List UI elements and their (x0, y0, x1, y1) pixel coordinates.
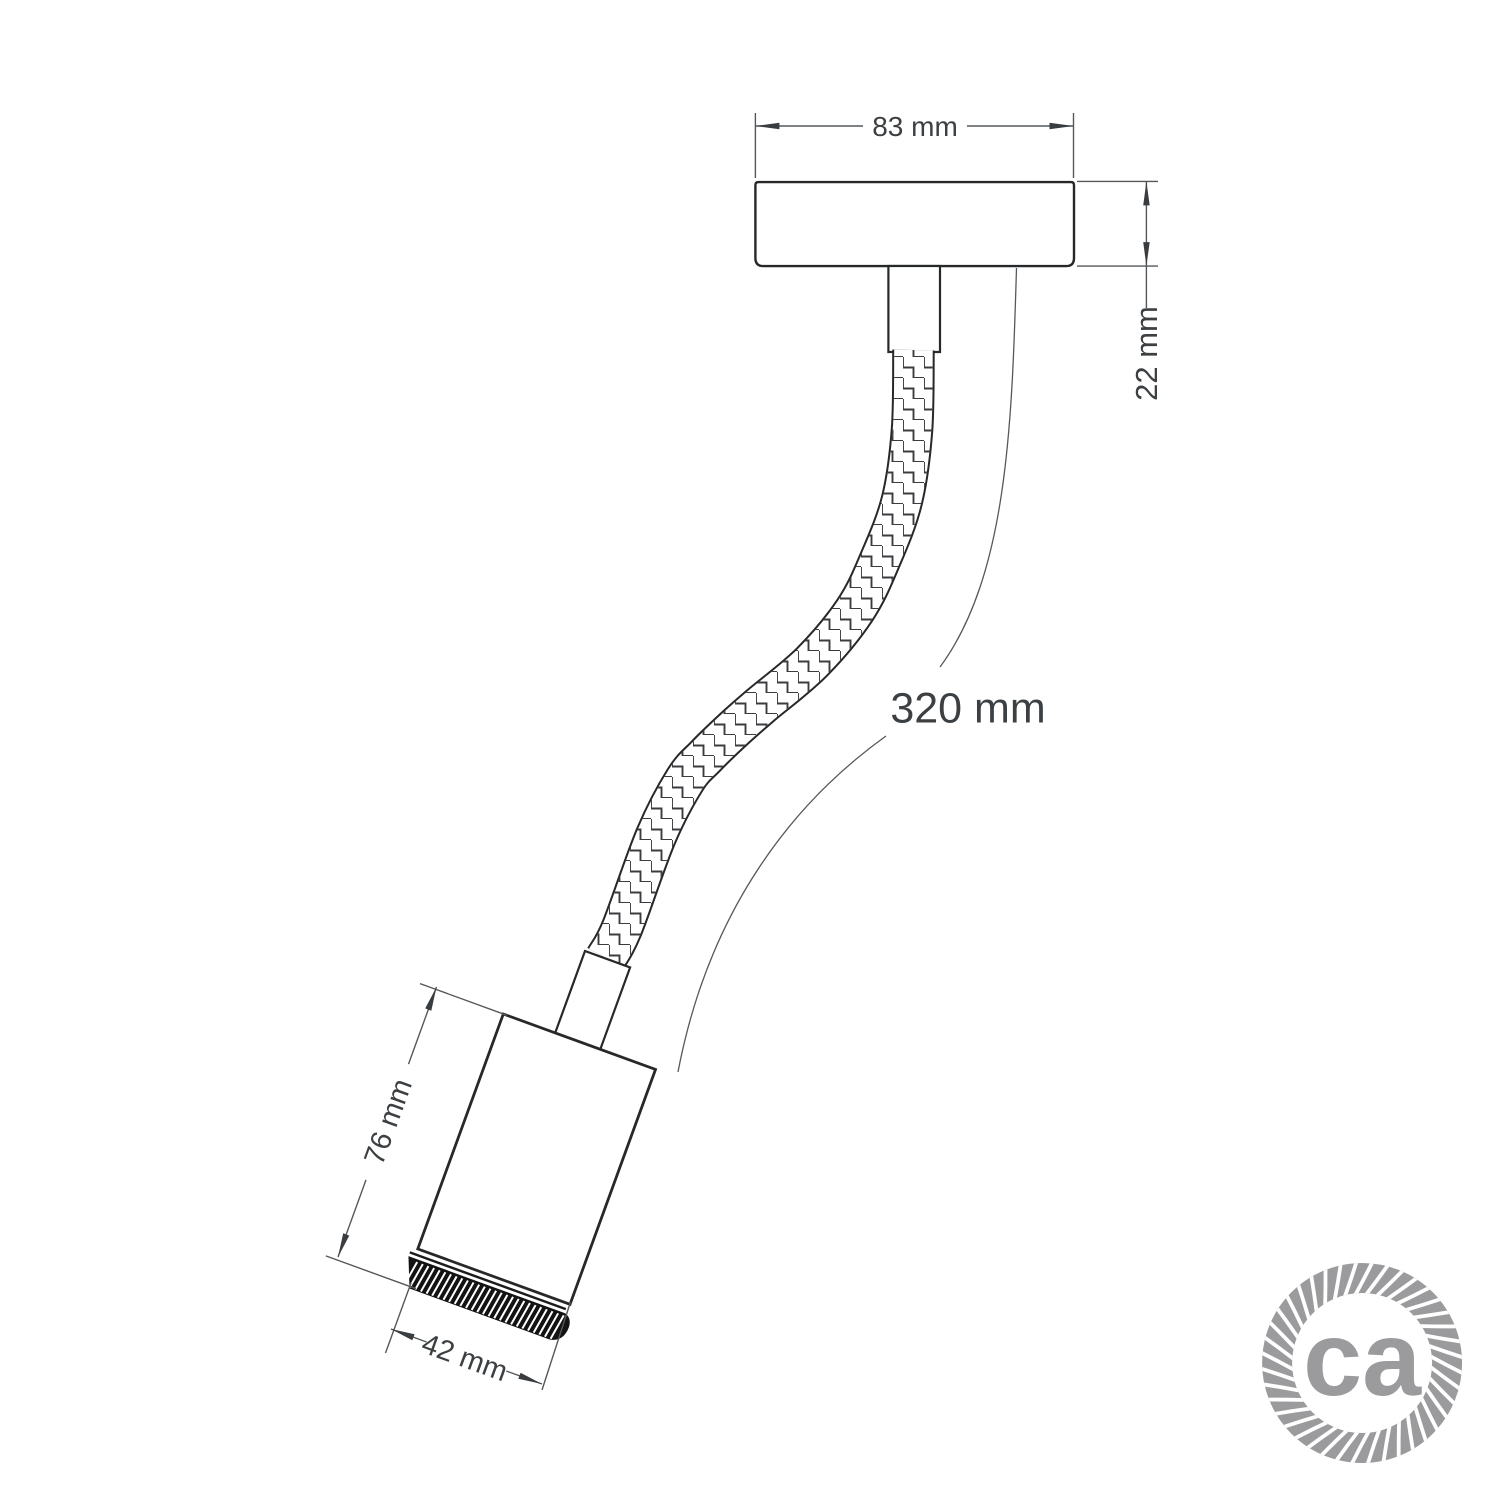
svg-text:ca: ca (1303, 1300, 1422, 1418)
svg-text:42 mm: 42 mm (417, 1328, 511, 1388)
svg-text:76 mm: 76 mm (359, 1075, 419, 1169)
svg-text:320 mm: 320 mm (890, 685, 1045, 733)
svg-text:22 mm: 22 mm (1129, 306, 1164, 401)
svg-text:83 mm: 83 mm (872, 111, 958, 142)
